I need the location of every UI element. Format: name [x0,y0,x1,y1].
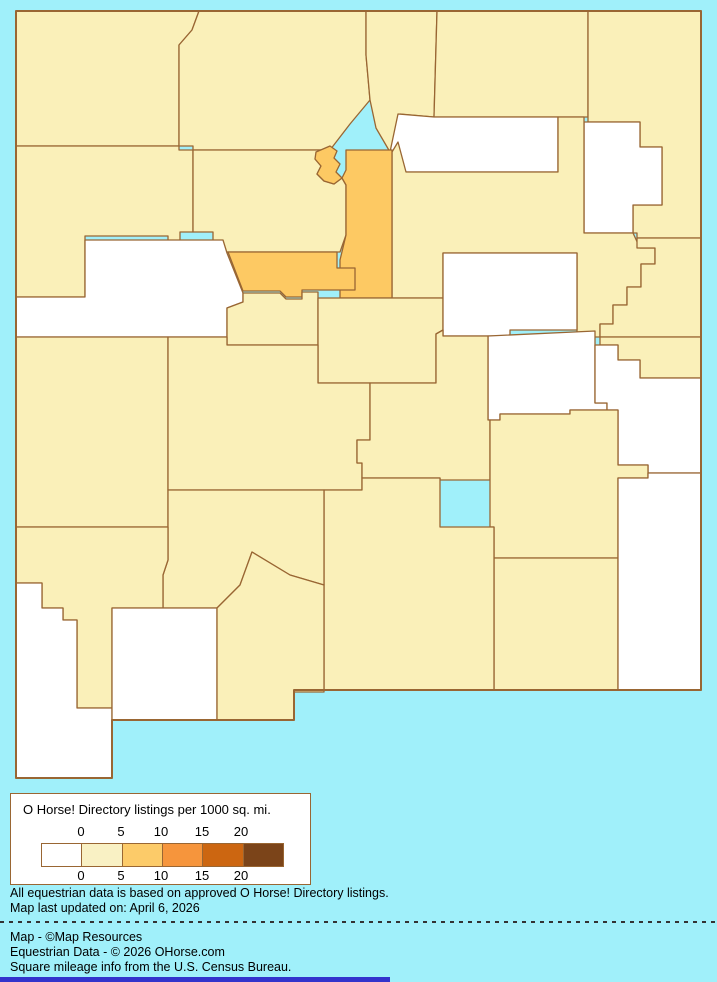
legend-tick-label: 20 [234,868,248,883]
county-mora[interactable] [390,114,558,172]
legend-ramp-cell-5 [243,844,283,866]
legend-ticks-top: 05101520 [11,824,310,838]
legend-ramp-cell-3 [162,844,202,866]
county-guadalupe[interactable] [443,253,577,336]
legend-tick-label: 0 [77,868,84,883]
legend-tick-label: 10 [154,824,168,839]
legend-ramp-cell-4 [202,844,242,866]
legend-tick-label: 5 [117,868,124,883]
page: O Horse! Directory listings per 1000 sq.… [0,0,717,982]
square-mileage-credit: Square mileage info from the U.S. Census… [10,960,291,974]
map-credit: Map - ©Map Resources [10,930,142,944]
legend-ramp-cell-0 [42,844,81,866]
legend-ramp-cell-1 [81,844,121,866]
county-san-juan[interactable] [16,11,199,146]
legend-tick-label: 15 [195,824,209,839]
legend-color-ramp [41,843,284,867]
legend-ramp-cell-2 [122,844,162,866]
last-updated-note: Map last updated on: April 6, 2026 [10,901,200,915]
county-otero[interactable] [324,478,494,690]
legend-tick-label: 10 [154,868,168,883]
legend-title: O Horse! Directory listings per 1000 sq.… [23,802,271,817]
bottom-blue-bar [0,977,390,982]
county-bernalillo[interactable] [228,252,355,297]
legend-tick-label: 15 [195,868,209,883]
county-layer [16,11,701,778]
county-luna[interactable] [112,608,217,720]
legend-tick-label: 20 [234,824,248,839]
legend-tick-label: 5 [117,824,124,839]
data-source-note: All equestrian data is based on approved… [10,886,389,900]
county-catron[interactable] [16,337,168,527]
legend-ticks-bottom: 05101520 [11,868,310,882]
county-torrance[interactable] [318,298,443,383]
county-de-baca[interactable] [488,331,607,420]
county-colfax[interactable] [434,11,588,117]
county-lea[interactable] [618,473,701,690]
equestrian-data-credit: Equestrian Data - © 2026 OHorse.com [10,945,225,959]
county-eddy[interactable] [494,558,618,690]
dashed-separator [0,921,717,923]
county-rio-arriba[interactable] [179,11,370,150]
legend-box: O Horse! Directory listings per 1000 sq.… [10,793,311,885]
legend-tick-label: 0 [77,824,84,839]
